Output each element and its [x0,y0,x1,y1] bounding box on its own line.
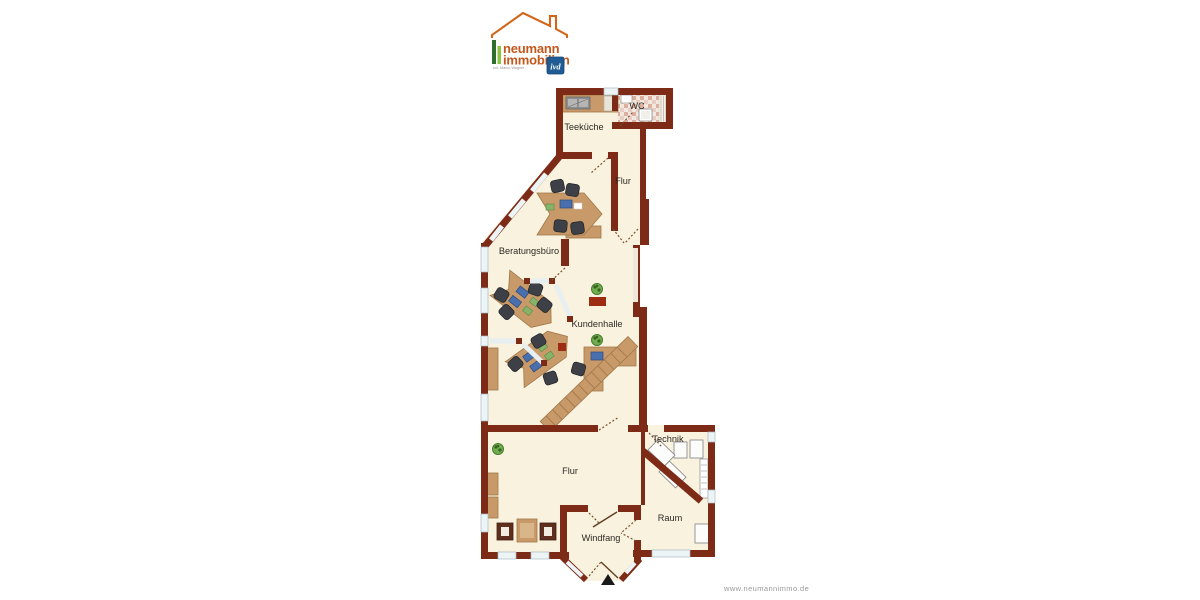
equipment-box [695,524,709,543]
room-label-windfang: Windfang [582,533,621,543]
roof-icon [492,13,567,38]
plant-icon [592,335,603,346]
room-label-wc: WC [629,101,645,111]
floor-mat [589,297,606,306]
wall-niche [633,248,638,302]
kitchen-counter [562,95,618,112]
ivd-badge-label: ivd [550,62,561,72]
plant-icon [493,444,504,455]
plant-icon [592,284,603,295]
logo-bar-dark [492,40,496,64]
room-label-beratungsbuero: Beratungsbüro [499,246,559,256]
floorplan-page: neumann immobilien Inh. Marco Wagner ivd [0,0,1200,600]
floorplan-svg: Teeküche WC Flur Beratungsbüro Kundenhal… [480,85,720,588]
room-label-kundenhalle: Kundenhalle [571,319,622,329]
ventilation-shaft [659,95,666,122]
company-logo: neumann immobilien Inh. Marco Wagner ivd [488,9,570,77]
ivd-badge: ivd [547,57,564,74]
floor-mat [558,343,566,351]
wall-stub [561,239,569,266]
room-label-teekueche: Teeküche [564,122,603,132]
room-label-flur-bottom: Flur [562,466,578,476]
logo-bar-light [498,46,502,64]
room-label-raum: Raum [658,513,683,523]
website-url: www.neumannimmo.de [724,584,809,593]
room-label-flur-top: Flur [615,176,631,186]
room-label-technik: Technik [652,434,684,444]
logo-subtitle: Inh. Marco Wagner [493,66,525,70]
toilet-seat [641,111,650,119]
